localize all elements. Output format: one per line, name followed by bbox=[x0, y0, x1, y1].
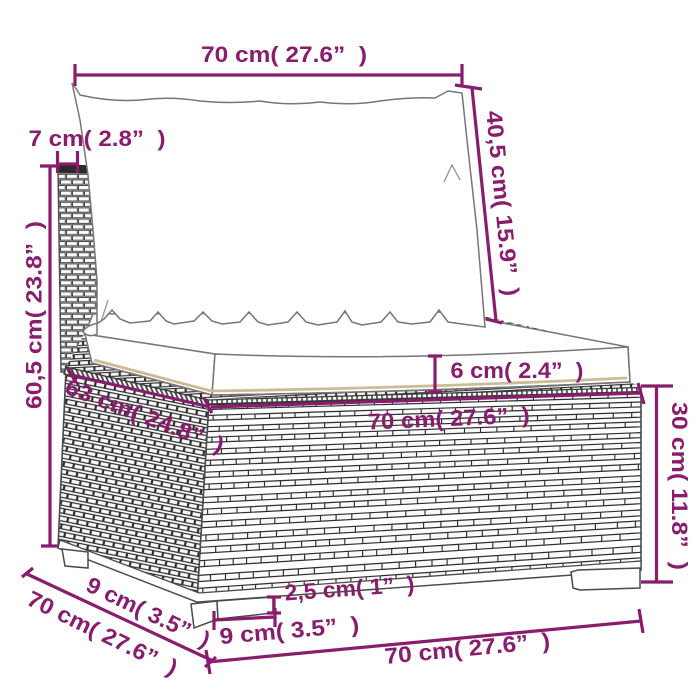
svg-text:30 cm( 11.8” ): 30 cm( 11.8” ) bbox=[667, 402, 692, 570]
svg-text:60,5 cm( 23.8” ): 60,5 cm( 23.8” ) bbox=[22, 221, 47, 409]
svg-text:7 cm( 2.8” ): 7 cm( 2.8” ) bbox=[29, 126, 166, 151]
svg-text:70 cm( 27.6” ): 70 cm( 27.6” ) bbox=[201, 42, 367, 67]
svg-text:6 cm( 2.4” ): 6 cm( 2.4” ) bbox=[451, 358, 584, 383]
